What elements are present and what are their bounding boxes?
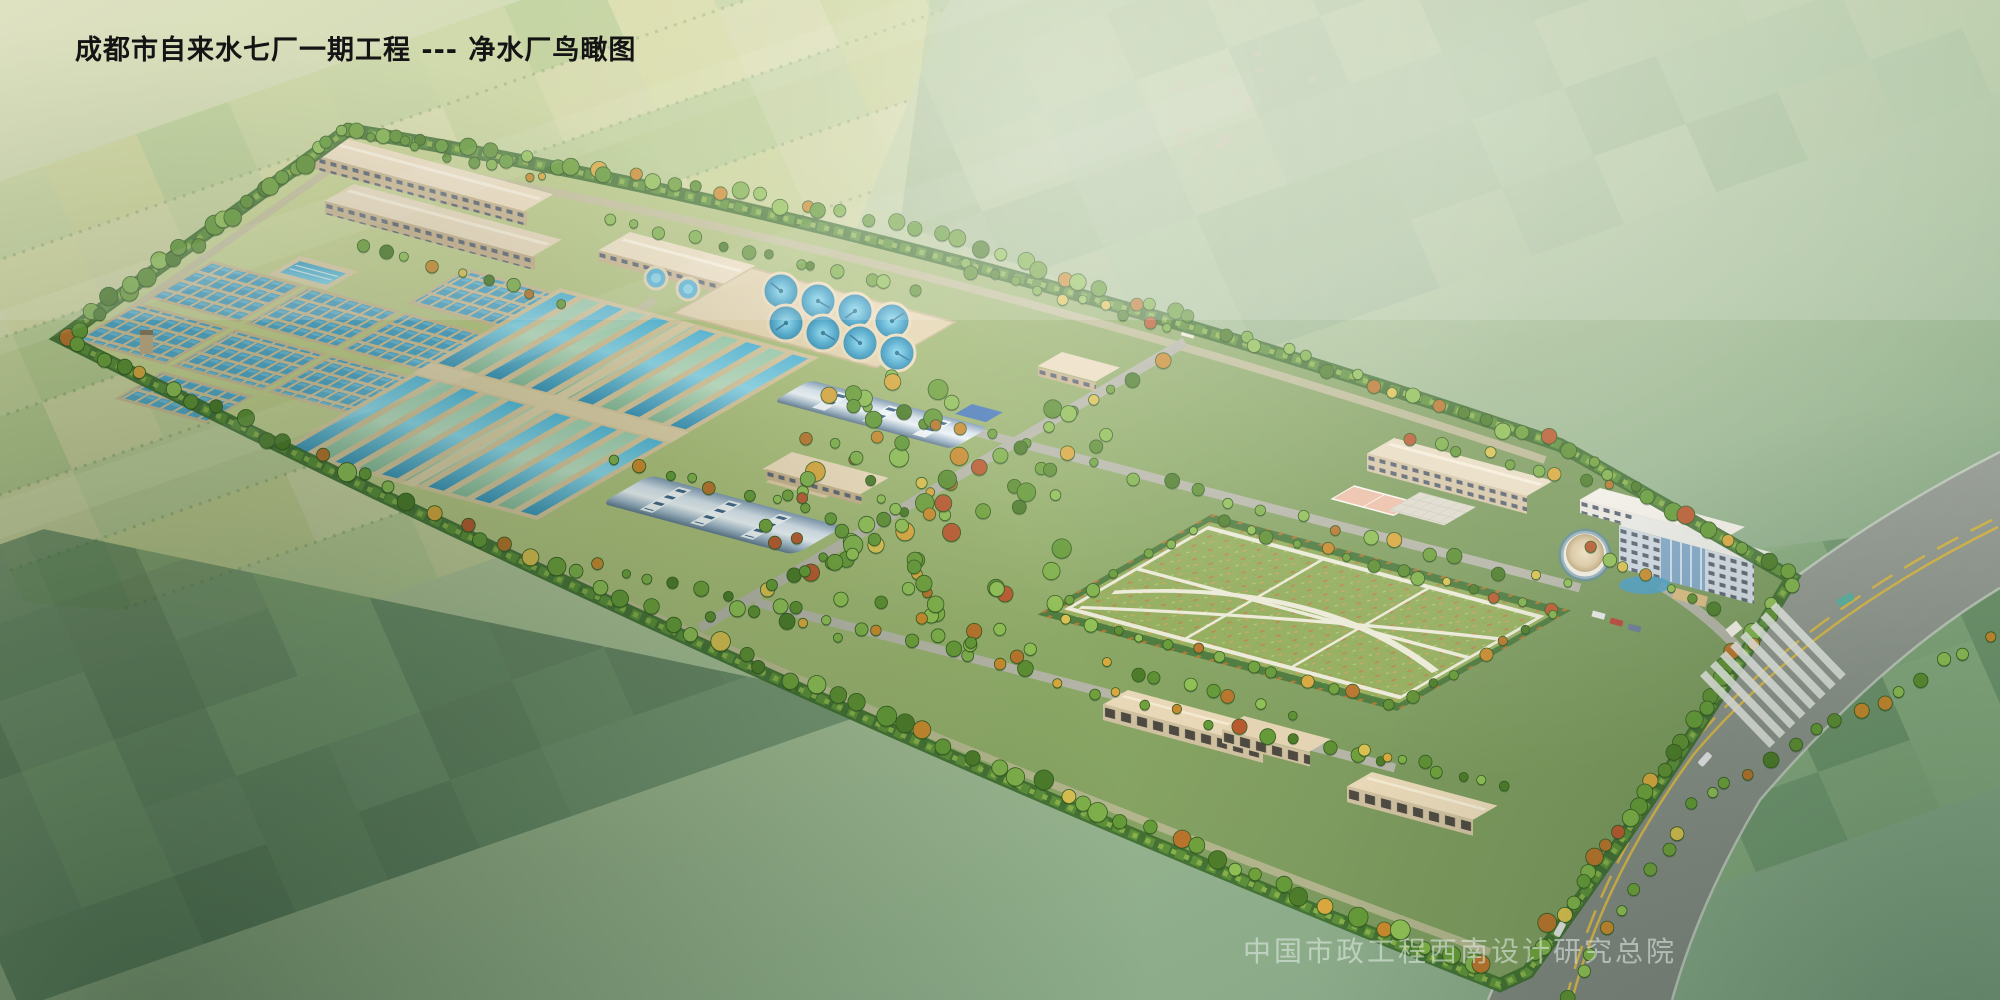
haze-overlays [0,0,2000,1000]
aerial-rendering: 成都市自来水七厂一期工程 --- 净水厂鸟瞰图 中国市政工程西南设计研究总院 [0,0,2000,1000]
designer-watermark: 中国市政工程西南设计研究总院 [1243,930,1677,970]
page-title: 成都市自来水七厂一期工程 --- 净水厂鸟瞰图 [75,28,636,67]
rendering-canvas [0,0,2000,1000]
